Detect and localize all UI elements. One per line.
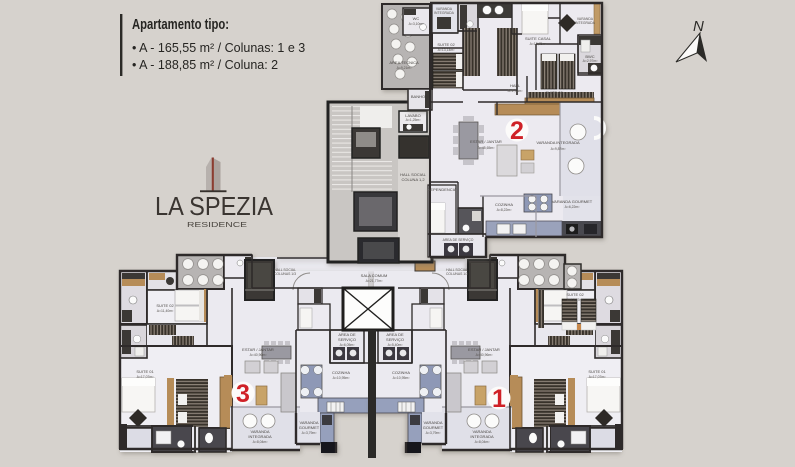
svg-text:SUITE 02: SUITE 02 [156, 303, 174, 308]
svg-text:A=17,07m²: A=17,07m² [589, 375, 607, 379]
svg-text:A=21,77m²: A=21,77m² [366, 279, 384, 283]
svg-text:A=12,57m²: A=12,57m² [567, 298, 585, 302]
svg-text:SUITE 01: SUITE 01 [588, 369, 606, 374]
svg-text:DEPENDENCIA: DEPENDENCIA [428, 187, 457, 192]
svg-text:A=9,87m²: A=9,87m² [551, 147, 567, 151]
svg-text:A=2,97m²: A=2,97m² [583, 59, 599, 63]
svg-text:A=9,21m²: A=9,21m² [397, 66, 413, 70]
svg-text:A=3,79m²: A=3,79m² [302, 431, 318, 435]
svg-text:3: 3 [236, 380, 250, 408]
svg-text:HALL: HALL [510, 83, 521, 88]
svg-text:N: N [693, 18, 704, 35]
svg-text:A=1,25m²: A=1,25m² [406, 118, 422, 122]
svg-text:SUITE CASAL: SUITE CASAL [525, 36, 552, 41]
svg-text:COZINHA: COZINHA [332, 370, 350, 375]
svg-text:COZINHA: COZINHA [392, 370, 410, 375]
svg-text:LA SPEZIA: LA SPEZIA [155, 191, 274, 221]
svg-text:A=8,22m²: A=8,22m² [497, 208, 513, 212]
svg-text:SALA COMUM: SALA COMUM [361, 273, 388, 278]
svg-text:INTEGRADA: INTEGRADA [575, 21, 596, 25]
svg-text:A=5,40m²: A=5,40m² [388, 343, 404, 347]
svg-text:AREA TECNICA: AREA TECNICA [389, 60, 419, 65]
svg-text:A=3,10m²: A=3,10m² [409, 22, 425, 26]
svg-text:A=2,73m²: A=2,73m² [508, 89, 524, 93]
svg-text:A=6,05m²: A=6,05m² [340, 343, 356, 347]
svg-text:ESTAR / JANTAR: ESTAR / JANTAR [242, 347, 274, 352]
svg-text:• A - 188,85 m² / Coluna: 2: • A - 188,85 m² / Coluna: 2 [132, 58, 278, 72]
svg-text:SERVIÇO: SERVIÇO [386, 337, 404, 342]
svg-text:INTEGRADA: INTEGRADA [248, 434, 272, 439]
svg-text:COZINHA: COZINHA [495, 202, 513, 207]
svg-text:A=10,95m²: A=10,95m² [333, 376, 351, 380]
svg-text:COLUNA 1,2: COLUNA 1,2 [401, 177, 425, 182]
svg-text:A=40,96m²: A=40,96m² [250, 353, 268, 357]
svg-text:SUITE 03: SUITE 03 [545, 90, 563, 95]
svg-text:• A - 165,55 m² / Colunas: 1 e: • A - 165,55 m² / Colunas: 1 e 3 [132, 41, 305, 55]
svg-text:ESTAR / JANTAR: ESTAR / JANTAR [468, 347, 500, 352]
svg-text:A=17,07m²: A=17,07m² [137, 375, 155, 379]
svg-text:ESTAR / JANTAR: ESTAR / JANTAR [470, 139, 502, 144]
svg-text:SUITE 02: SUITE 02 [566, 292, 584, 297]
svg-text:RESIDENCE: RESIDENCE [187, 222, 247, 229]
svg-text:COLUNAS 1/3: COLUNAS 1/3 [446, 272, 468, 276]
svg-text:WC: WC [413, 16, 420, 21]
svg-text:GOURMET: GOURMET [423, 425, 444, 430]
svg-text:GOURMET: GOURMET [299, 425, 320, 430]
svg-text:SUITE 02: SUITE 02 [437, 42, 455, 47]
svg-text:INTEGRADA: INTEGRADA [434, 11, 455, 15]
svg-text:A=13,14m²: A=13,14m² [438, 48, 456, 52]
svg-text:A=3,79m²: A=3,79m² [426, 431, 442, 435]
svg-text:COLUNAS 1/3: COLUNAS 1/3 [274, 272, 296, 276]
svg-text:SERVIÇO: SERVIÇO [338, 337, 356, 342]
svg-text:A=45,65m²: A=45,65m² [478, 146, 496, 150]
svg-text:BANHO: BANHO [411, 94, 425, 99]
svg-text:2: 2 [510, 117, 524, 145]
svg-text:Apartamento tipo:: Apartamento tipo: [132, 17, 229, 33]
svg-text:A=13,75m²: A=13,75m² [530, 42, 548, 46]
svg-text:VARANDA INTEGRADA: VARANDA INTEGRADA [536, 140, 580, 145]
svg-text:A=8,04m²: A=8,04m² [253, 440, 269, 444]
svg-text:AREA DE SERVIÇO: AREA DE SERVIÇO [443, 238, 474, 242]
svg-text:INTEGRADA: INTEGRADA [470, 434, 494, 439]
svg-text:A=40,96m²: A=40,96m² [476, 353, 494, 357]
svg-text:A=11,40m²: A=11,40m² [157, 309, 174, 313]
svg-text:A=10,95m²: A=10,95m² [393, 376, 411, 380]
svg-text:A=6,22m²: A=6,22m² [565, 205, 581, 209]
svg-text:VARANDA GOURMET: VARANDA GOURMET [552, 199, 593, 204]
svg-text:1: 1 [492, 385, 506, 413]
svg-text:SUITE 01: SUITE 01 [136, 369, 154, 374]
svg-text:A=8,04m²: A=8,04m² [475, 440, 491, 444]
